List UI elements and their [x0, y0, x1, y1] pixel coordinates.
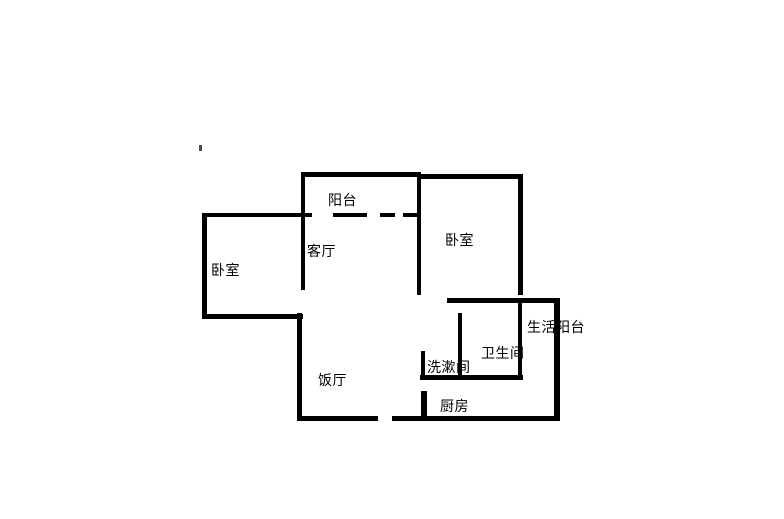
scan-artifact [199, 145, 202, 151]
room-label-washroom: 洗漱间 [427, 361, 471, 376]
room-label-kitchen: 厨房 [440, 400, 469, 415]
wall-dining-left [297, 313, 302, 421]
wall-balcony-living-left [301, 172, 305, 290]
wall-bedroom-right-outer [518, 174, 523, 295]
wall-bathroom-right [518, 303, 522, 378]
wall-bathroom-block-top [447, 298, 559, 303]
wall-utility-balcony-outer [554, 298, 560, 421]
room-label-bathroom: 卫生间 [481, 347, 525, 362]
room-label-balcony: 阳台 [328, 194, 357, 209]
wall-top-right-segment [417, 174, 523, 179]
wall-bottom-right-segment [392, 416, 560, 421]
wall-kitchen-door-jamb [421, 391, 427, 419]
floor-plan-canvas: 阳台 客厅 卧室 卧室 生活阳台 卫生间 洗漱间 饭厅 厨房 [0, 0, 784, 519]
wall-bedroom-left-top [202, 213, 312, 217]
wall-bedroom-left-outer [202, 213, 207, 319]
room-label-utility-balcony: 生活阳台 [527, 321, 585, 336]
wall-bottom-left-segment [297, 416, 378, 421]
balcony-door-dash-1 [333, 213, 367, 217]
wall-living-bedroom-divider [417, 172, 421, 295]
wall-bedroom-left-bottom [202, 314, 303, 319]
room-label-bedroom-left: 卧室 [211, 264, 240, 279]
balcony-door-dash-2 [380, 213, 395, 217]
room-label-living-room: 客厅 [307, 245, 336, 260]
wall-washroom-left [421, 351, 425, 378]
room-label-dining-room: 饭厅 [318, 374, 347, 389]
room-label-bedroom-right: 卧室 [445, 234, 474, 249]
wall-top-left-segment [302, 172, 421, 177]
balcony-door-dash-3 [403, 213, 417, 217]
